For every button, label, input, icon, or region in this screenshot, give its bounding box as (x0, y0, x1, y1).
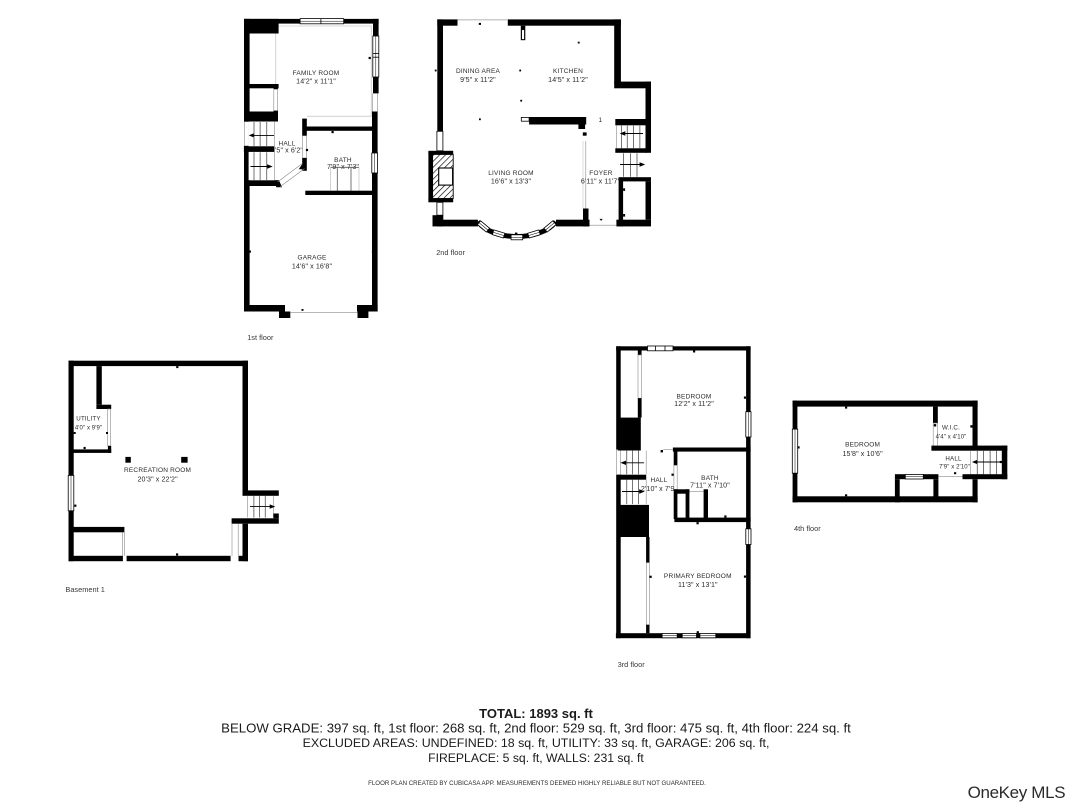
svg-text:5'5" x 6'2": 5'5" x 6'2" (271, 147, 303, 155)
svg-text:OneKey MLS: OneKey MLS (968, 783, 1066, 802)
svg-text:4'4" x 4'10": 4'4" x 4'10" (936, 434, 967, 440)
svg-text:15'8" x 10'6": 15'8" x 10'6" (842, 450, 883, 458)
svg-text:Basement 1: Basement 1 (65, 585, 104, 594)
svg-text:LIVING ROOM: LIVING ROOM (488, 170, 534, 177)
svg-text:UTILITY: UTILITY (76, 416, 100, 423)
svg-text:4th floor: 4th floor (794, 524, 821, 533)
svg-text:3rd floor: 3rd floor (618, 660, 646, 669)
svg-text:W.I.C.: W.I.C. (942, 424, 960, 431)
svg-text:14'6" x 16'8": 14'6" x 16'8" (292, 262, 333, 270)
svg-text:PRIMARY BEDROOM: PRIMARY BEDROOM (664, 573, 732, 580)
svg-text:TOTAL: 1893 sq. ft: TOTAL: 1893 sq. ft (479, 706, 593, 721)
svg-text:11'3" x 13'1": 11'3" x 13'1" (678, 581, 718, 589)
svg-text:2nd floor: 2nd floor (436, 248, 465, 257)
svg-text:BEDROOM: BEDROOM (845, 441, 880, 448)
svg-text:FLOOR PLAN CREATED BY CUBICASA: FLOOR PLAN CREATED BY CUBICASA APP. MEAS… (368, 780, 706, 787)
svg-text:EXCLUDED AREAS: UNDEFINED: 18: EXCLUDED AREAS: UNDEFINED: 18 sq. ft, UT… (303, 736, 770, 750)
svg-text:7'9" x 2'10": 7'9" x 2'10" (939, 464, 970, 470)
svg-text:7'11" x 7'10": 7'11" x 7'10" (690, 481, 730, 489)
svg-text:14'5" x 11'2": 14'5" x 11'2" (548, 76, 588, 84)
svg-text:FIREPLACE: 5 sq. ft, WALLS: 23: FIREPLACE: 5 sq. ft, WALLS: 231 sq. ft (428, 751, 644, 765)
svg-text:6'11" x 11'7": 6'11" x 11'7" (581, 177, 621, 185)
svg-text:20'3" x 22'2": 20'3" x 22'2" (137, 475, 178, 483)
svg-text:FOYER: FOYER (589, 170, 612, 177)
svg-text:HALL: HALL (945, 455, 962, 462)
svg-text:DINING AREA: DINING AREA (456, 68, 501, 75)
svg-text:9'5" x 11'2": 9'5" x 11'2" (460, 76, 496, 84)
svg-text:16'6" x 13'3": 16'6" x 13'3" (491, 177, 532, 185)
svg-text:1: 1 (599, 117, 603, 124)
svg-text:2'10" x 7'9": 2'10" x 7'9" (641, 485, 678, 493)
svg-text:1st floor: 1st floor (247, 333, 274, 342)
svg-text:14'2" x 11'1": 14'2" x 11'1" (296, 78, 336, 86)
svg-text:GARAGE: GARAGE (297, 254, 326, 261)
svg-text:12'2" x 11'2": 12'2" x 11'2" (674, 400, 714, 408)
svg-text:RECREATION ROOM: RECREATION ROOM (124, 467, 191, 474)
svg-text:BELOW GRADE: 397 sq. ft, 1st f: BELOW GRADE: 397 sq. ft, 1st floor: 268 … (221, 720, 851, 735)
svg-text:4'0" x 9'9": 4'0" x 9'9" (75, 425, 102, 431)
svg-text:FAMILY ROOM: FAMILY ROOM (293, 70, 340, 77)
svg-text:KITCHEN: KITCHEN (553, 68, 583, 75)
svg-text:HALL: HALL (650, 477, 667, 484)
